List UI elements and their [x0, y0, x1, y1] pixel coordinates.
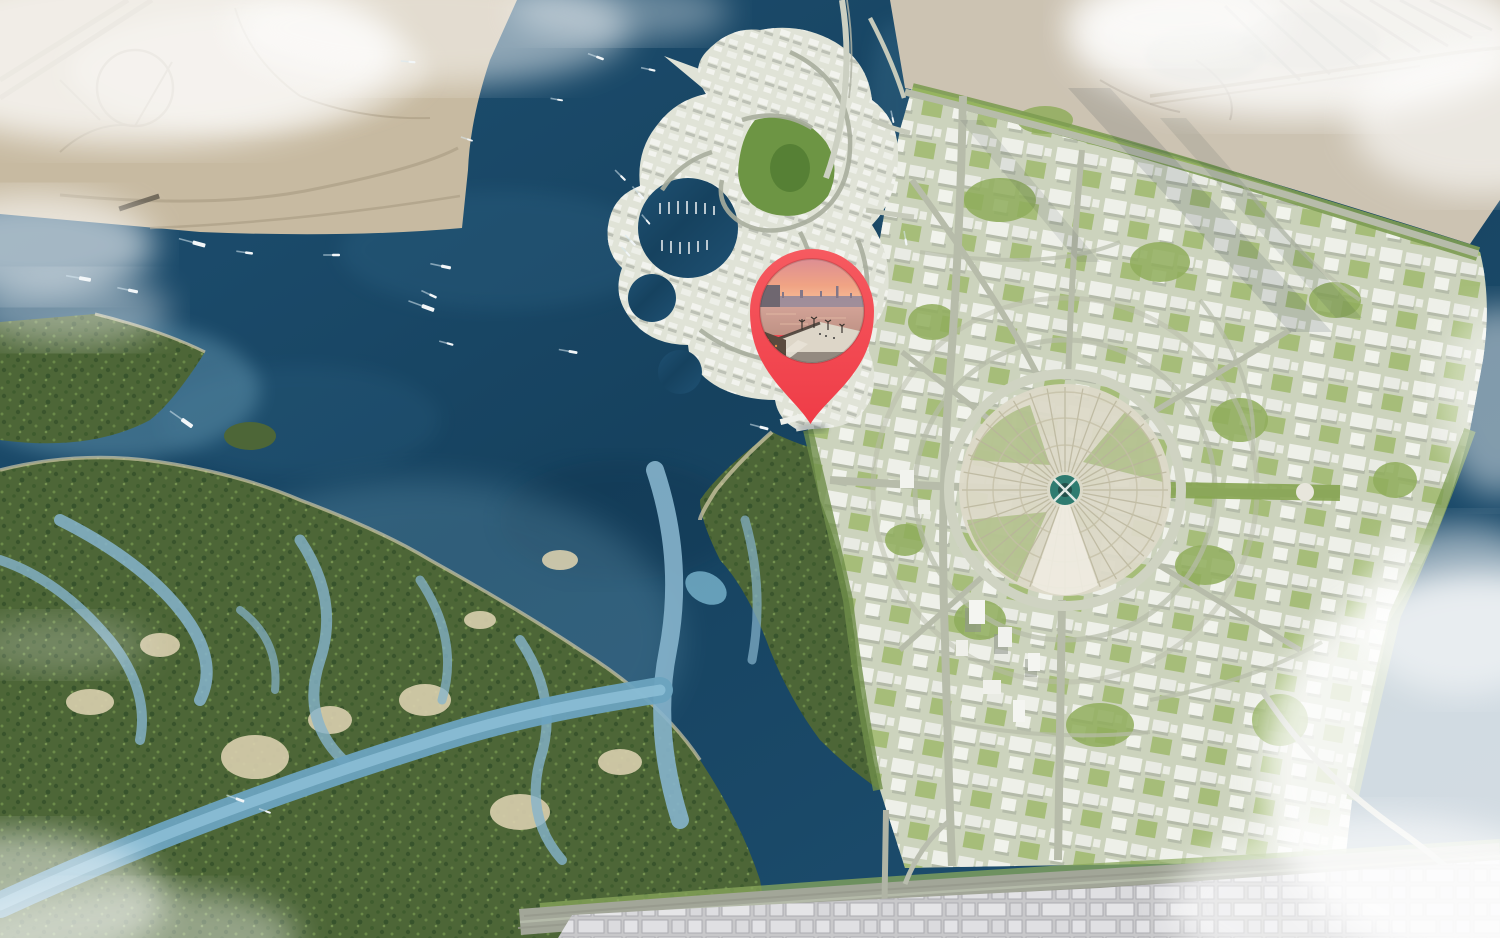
mangrove-islet [224, 422, 276, 450]
axis-plaza-dot [1296, 483, 1314, 501]
central-plaza [949, 374, 1181, 606]
green-axis [1170, 490, 1340, 493]
aerial-map [0, 0, 1500, 938]
pin-shadow [796, 423, 828, 433]
